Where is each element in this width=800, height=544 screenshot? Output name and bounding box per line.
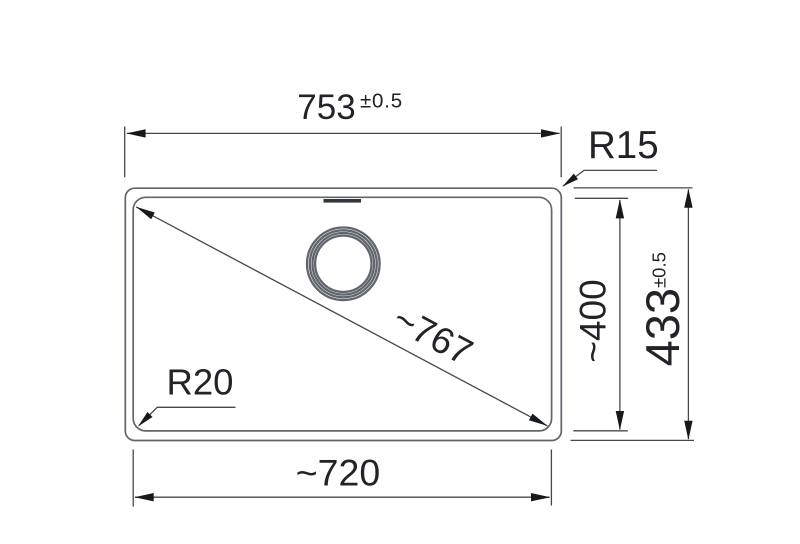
svg-text:±0.5: ±0.5 bbox=[360, 90, 403, 113]
svg-text:R20: R20 bbox=[167, 362, 234, 403]
svg-text:~720: ~720 bbox=[296, 452, 380, 494]
svg-text:753: 753 bbox=[297, 88, 355, 127]
svg-text:R15: R15 bbox=[588, 124, 659, 167]
svg-text:~400: ~400 bbox=[573, 279, 614, 362]
